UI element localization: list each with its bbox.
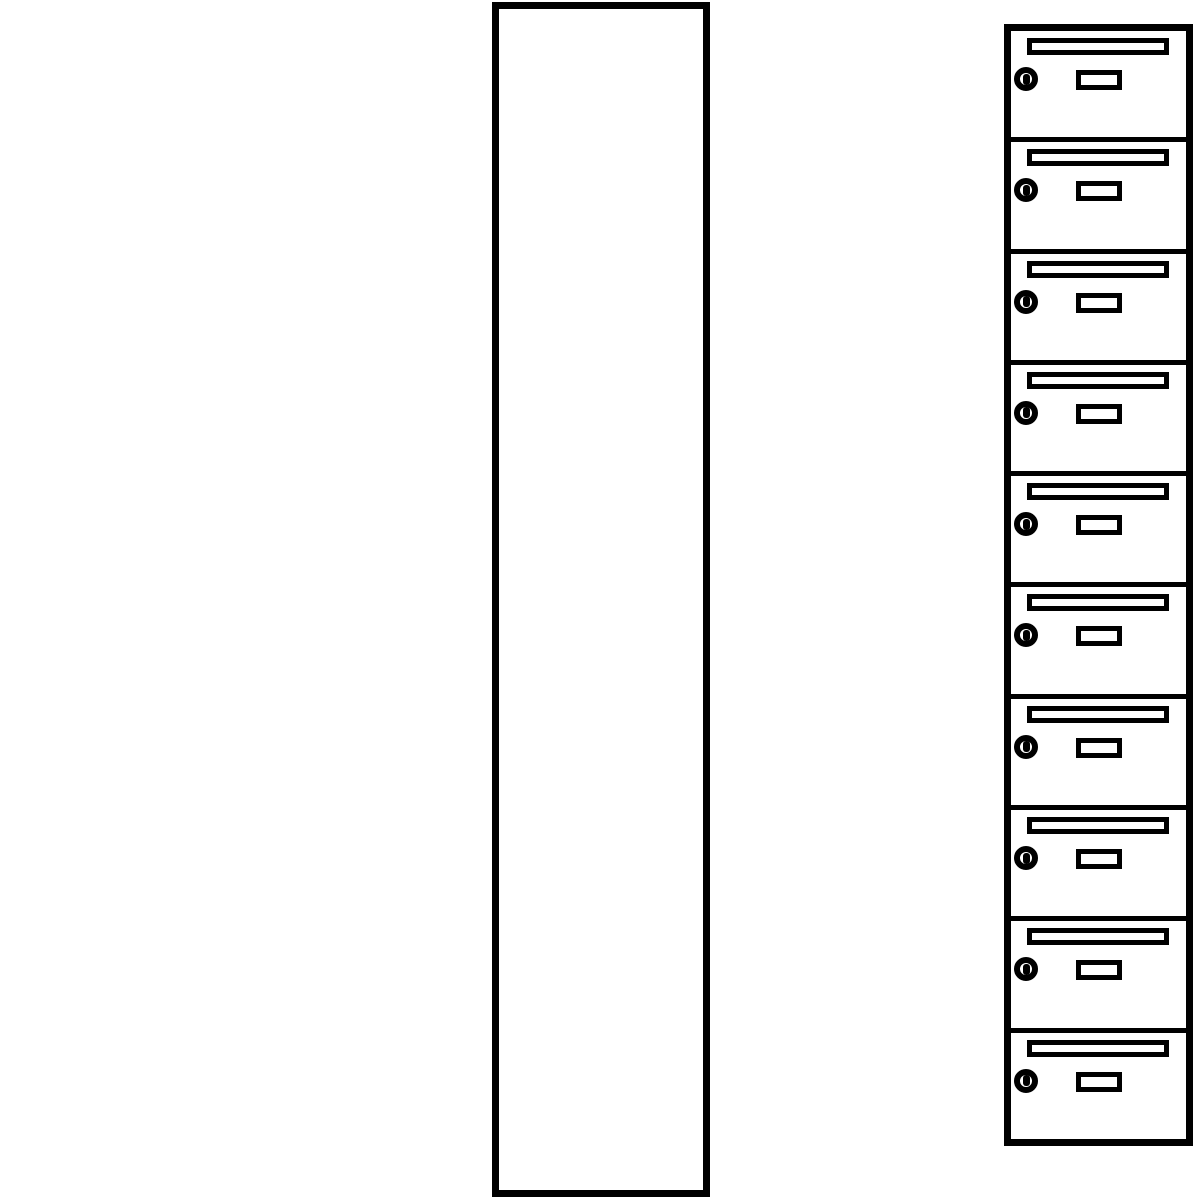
lock-icon <box>1014 178 1038 202</box>
mail-slot <box>1027 928 1169 945</box>
label-holder <box>1076 1072 1122 1092</box>
keyhole-icon <box>1023 296 1030 307</box>
lock-icon <box>1014 735 1038 759</box>
mailbox-compartment <box>1011 365 1186 476</box>
keyhole-icon <box>1023 964 1030 975</box>
mailbox-compartment <box>1011 1033 1186 1139</box>
lock-icon <box>1014 957 1038 981</box>
mailbox-compartment <box>1011 587 1186 698</box>
label-holder <box>1076 70 1122 90</box>
lock-icon <box>1014 623 1038 647</box>
mail-slot <box>1027 372 1169 389</box>
label-holder <box>1076 849 1122 869</box>
mail-slot <box>1027 817 1169 834</box>
mailbox-compartment <box>1011 31 1186 142</box>
cabinet-body <box>1004 24 1193 1146</box>
mail-slot <box>1027 706 1169 723</box>
mailbox-compartment <box>1011 142 1186 253</box>
mail-slot <box>1027 149 1169 166</box>
label-holder <box>1076 960 1122 980</box>
mail-slot <box>1027 483 1169 500</box>
lock-icon <box>1014 846 1038 870</box>
mail-slot <box>1027 261 1169 278</box>
lock-icon <box>1014 512 1038 536</box>
mail-slot <box>1027 1040 1169 1057</box>
keyhole-icon <box>1023 407 1030 418</box>
mailbox-compartment <box>1011 921 1186 1032</box>
mailbox-cabinet-drawing <box>0 0 1200 1200</box>
keyhole-icon <box>1023 853 1030 864</box>
lock-icon <box>1014 401 1038 425</box>
label-holder <box>1076 626 1122 646</box>
mail-slot <box>1027 38 1169 55</box>
mailbox-compartment <box>1011 476 1186 587</box>
lock-icon <box>1014 67 1038 91</box>
mailbox-compartment <box>1011 810 1186 921</box>
label-holder <box>1076 181 1122 201</box>
label-holder <box>1076 738 1122 758</box>
lock-icon <box>1014 290 1038 314</box>
cabinet-outer-frame <box>492 2 710 1197</box>
label-holder <box>1076 404 1122 424</box>
keyhole-icon <box>1023 630 1030 641</box>
label-holder <box>1076 515 1122 535</box>
keyhole-icon <box>1023 74 1030 85</box>
mailbox-compartment <box>1011 699 1186 810</box>
keyhole-icon <box>1023 1075 1030 1086</box>
label-holder <box>1076 293 1122 313</box>
keyhole-icon <box>1023 741 1030 752</box>
mail-slot <box>1027 594 1169 611</box>
keyhole-icon <box>1023 185 1030 196</box>
keyhole-icon <box>1023 519 1030 530</box>
lock-icon <box>1014 1069 1038 1093</box>
mailbox-compartment <box>1011 254 1186 365</box>
